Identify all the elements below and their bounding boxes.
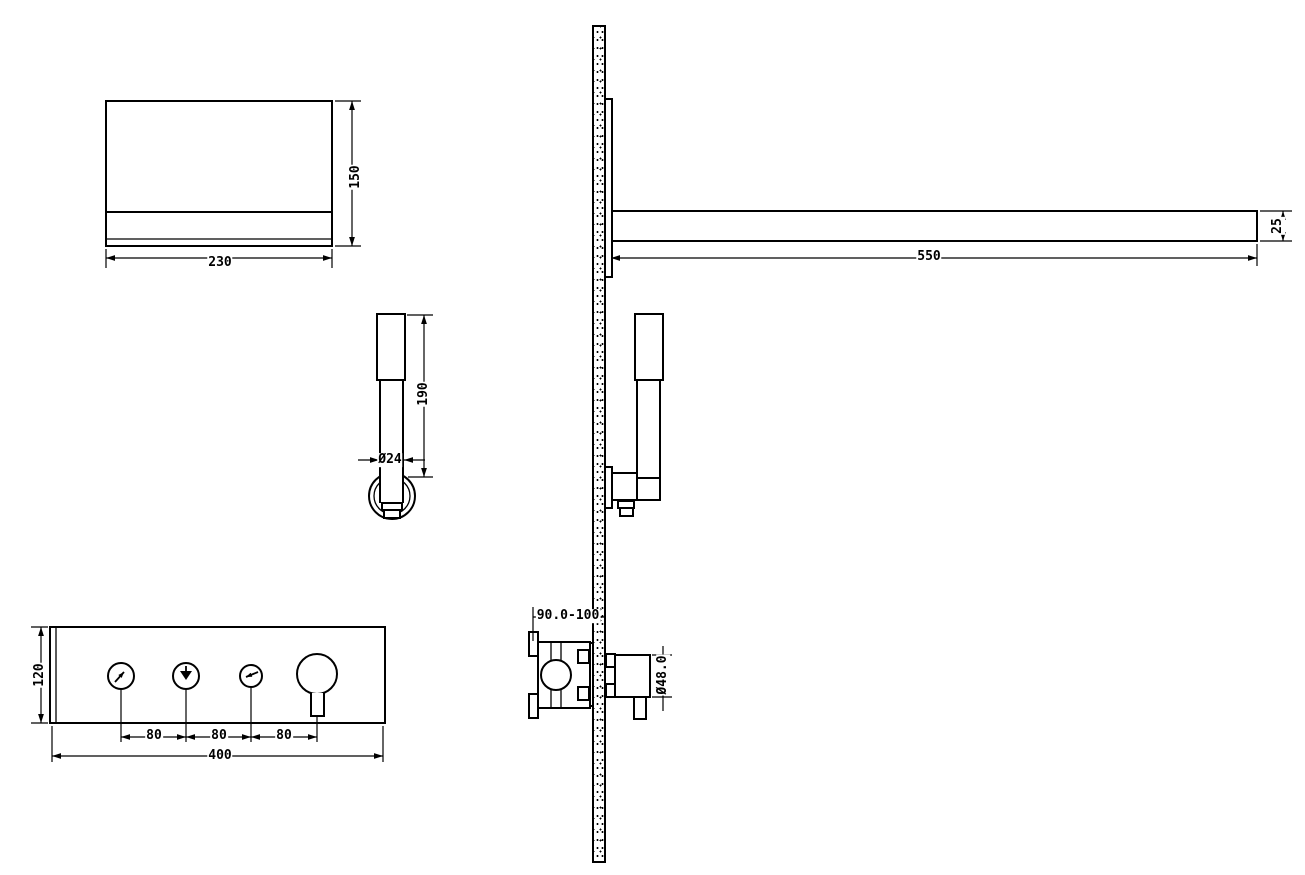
hand-shower-cap-upper [382, 503, 402, 510]
hand-shower-front-view [358, 314, 433, 519]
dim-label-knob-diameter: Ø48.0 [656, 654, 670, 695]
dim-label-handshower-length: 190 [417, 381, 431, 406]
shower-arm [609, 211, 1257, 241]
mixer-valve-side-view [529, 607, 672, 719]
valve-port-bottom [578, 687, 589, 700]
dim-label-spacing-1: 80 [145, 729, 163, 743]
hand-shower-cap-lower [384, 510, 400, 518]
handshower-spray-icon [115, 672, 124, 682]
valve-port-top [578, 650, 589, 663]
shower-head-outline [106, 101, 332, 246]
dim-label-spacing-2: 80 [210, 729, 228, 743]
dim-label-head-width: 230 [207, 256, 232, 270]
holder-bracket [612, 473, 638, 500]
hand-shower-body-fill [380, 380, 403, 503]
hand-shower-head-side [635, 314, 663, 380]
shower-head-front-view [106, 101, 361, 268]
dim-label-panel-width: 400 [207, 749, 232, 763]
dim-label-handshower-diameter: Ø24 [377, 453, 402, 467]
control-panel-front-view [31, 627, 385, 762]
hand-shower-side-view [605, 314, 663, 516]
hand-shower-body-side [637, 380, 660, 478]
hand-shower-head [377, 314, 405, 380]
trim-nub-top [606, 654, 615, 667]
technical-drawing-canvas: 150 230 550 25 190 Ø24 120 80 80 80 400 … [0, 0, 1305, 875]
knob-body-side [615, 655, 650, 697]
hand-shower-lower-side [637, 478, 660, 500]
dim-label-spacing-3: 80 [275, 729, 293, 743]
outlet-cap-upper [618, 501, 634, 508]
dim-label-embed-depth: 90.0-100 [536, 609, 601, 623]
drawing-overlay [0, 0, 1305, 875]
temperature-knob [297, 654, 337, 694]
dim-label-arm-length: 550 [916, 250, 941, 264]
outlet-cap-lower [620, 508, 633, 516]
knob-stem [311, 693, 324, 716]
rain-spray-icon [180, 671, 192, 680]
knob-stem-side [634, 697, 646, 719]
dim-label-arm-thickness: 25 [1271, 217, 1285, 235]
dim-label-head-height: 150 [349, 164, 363, 189]
mounting-ear-bottom [529, 694, 538, 718]
holder-wall-plate [605, 467, 612, 508]
spout-arrow-icon [246, 672, 258, 677]
valve-cartridge-circle [541, 660, 571, 690]
trim-nub-bottom [606, 684, 615, 697]
dim-label-panel-height: 120 [33, 662, 47, 687]
wall-flange-plate [605, 99, 612, 277]
shower-arm-side-view [605, 99, 1292, 277]
diverter-button-3 [240, 665, 262, 687]
